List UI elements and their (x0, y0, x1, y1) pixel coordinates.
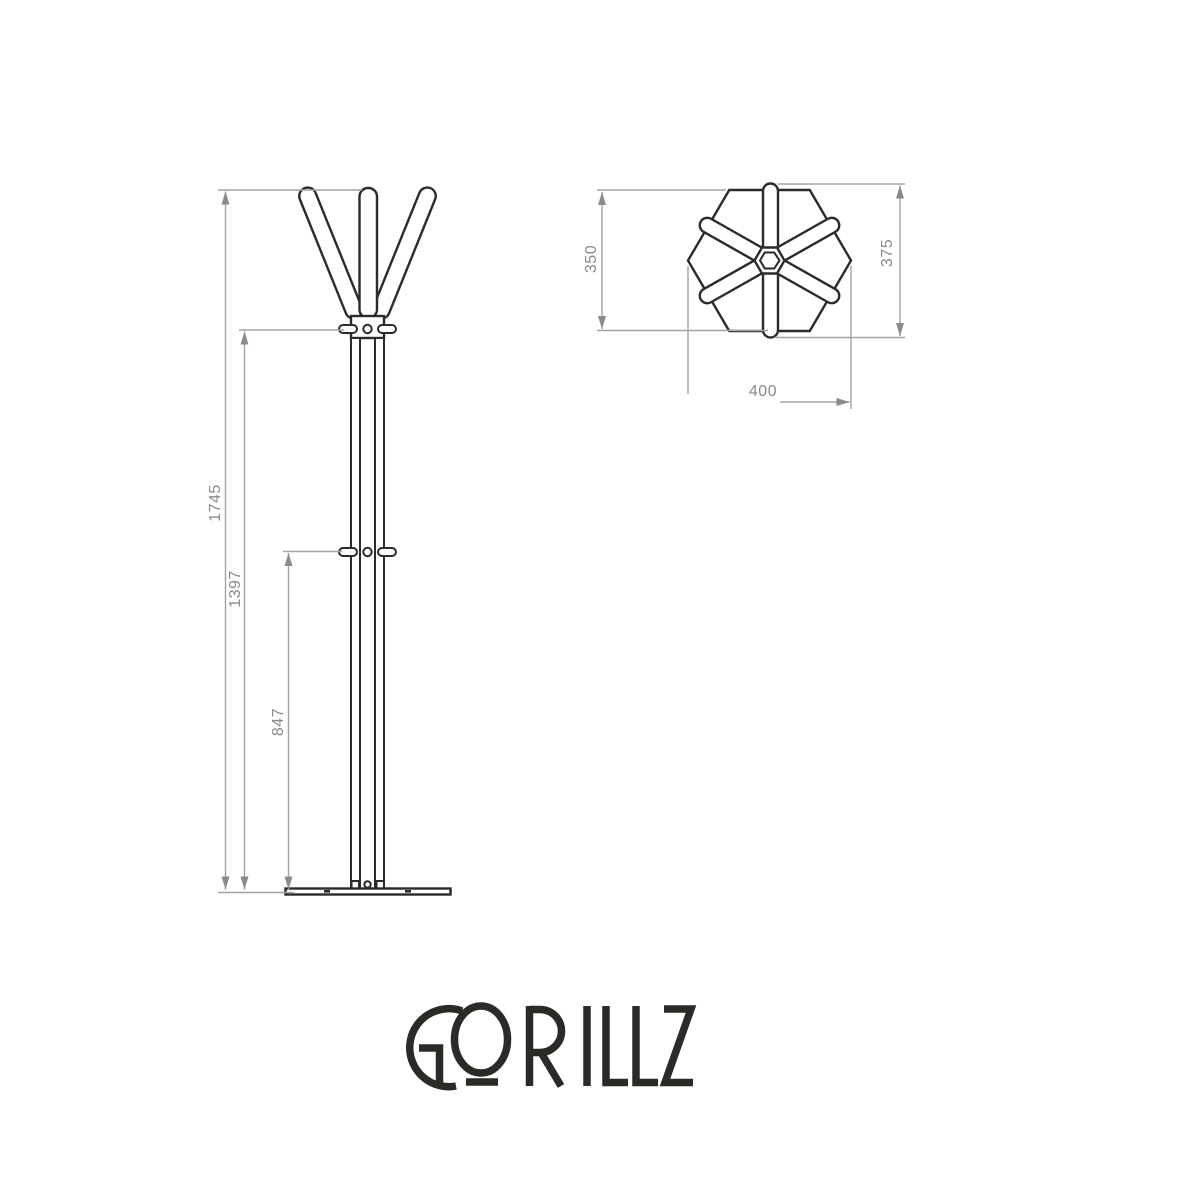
top-view: 350 375 400 (583, 184, 905, 410)
logo-letter-r (530, 1006, 562, 1086)
logo-letter-l1 (606, 1006, 628, 1083)
upper-left-peg (339, 325, 357, 333)
logo-r-bowl (530, 1010, 562, 1053)
dimension-label-overall-width: 400 (749, 383, 777, 400)
mid-center-bolt (363, 548, 371, 556)
technical-drawing-page: 1745 1397 847 350 (0, 0, 1200, 1200)
base-center-bolt (364, 881, 370, 887)
logo-o-ring (455, 1006, 508, 1073)
dimension-label-upper-hook-height: 1397 (227, 570, 244, 608)
mid-right-peg (378, 548, 396, 556)
brand-logo (410, 1006, 693, 1087)
right-hook-prong (370, 185, 438, 321)
base-plate-slot-left (324, 890, 330, 893)
front-view: 1745 1397 847 (207, 185, 451, 894)
dimension-label-overall-depth: 375 (879, 239, 896, 267)
logo-letter-l2 (636, 1006, 658, 1083)
dimension-label-overall-height: 1745 (207, 484, 224, 522)
drawing-canvas: 1745 1397 847 350 (0, 0, 1200, 1200)
upper-right-peg (378, 325, 396, 333)
shaft-left-bar (351, 338, 360, 889)
dimension-label-mid-hook-height: 847 (270, 708, 287, 736)
logo-letter-z (664, 1009, 693, 1083)
upper-center-bolt (363, 325, 371, 333)
base-plate (286, 889, 451, 895)
left-hook-prong (297, 185, 365, 321)
center-hub-inner (760, 253, 780, 269)
center-prong (360, 188, 378, 318)
logo-letter-o (455, 1006, 508, 1082)
base-plate-slot-right (405, 890, 411, 893)
logo-r-leg (541, 1053, 561, 1087)
dimension-label-body-width: 350 (583, 245, 600, 273)
shaft-right-bar (375, 338, 384, 889)
